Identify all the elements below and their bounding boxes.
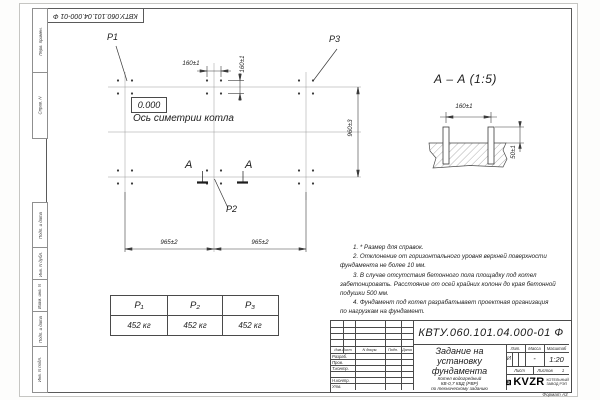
section-dim-height: 50±1 [510, 142, 518, 162]
note-line: подушки 500 мм. [340, 289, 576, 298]
format-label: Формат А3 [535, 393, 575, 398]
point-label-p3: P3 [329, 35, 340, 44]
section-dim-width: 160±1 [450, 104, 478, 110]
sheet-label: Лист [506, 366, 533, 374]
section-letter-right: А [245, 160, 252, 171]
document-subtitle: Котел водогрейный КВ-0,7 КБД (РВР) по те… [413, 376, 506, 390]
document-title: Задание на установку фундамента [413, 345, 506, 376]
load-table-value: 452 кг [222, 316, 278, 335]
row-label-utv: Утв. [331, 383, 356, 390]
notes-block: 1. * Размер для справок. 2. Отклонение о… [340, 243, 576, 317]
col-header-n-dokum: N докум. [355, 346, 385, 353]
dim-965-right: 965±2 [247, 240, 273, 246]
load-table-header: P₁ [111, 296, 167, 316]
dim-160-top-horizontal: 160±1 [178, 61, 204, 67]
sheets-value: 1 [557, 366, 569, 374]
plan-centerlines [108, 63, 361, 252]
row-label-tkontr: Т.контр. [331, 365, 356, 371]
note-line: забетонировать. Расстояние от осей крайн… [340, 280, 576, 289]
col-header-izm-list: Изм.Лист [331, 346, 355, 353]
col-header-podp: Подп. [385, 346, 401, 353]
note-line: 2. Отклонение от горизонтального уровня … [340, 252, 576, 261]
scale-label: Масштаб [544, 344, 569, 352]
load-table-header: P₂ [167, 296, 223, 316]
note-line: 1. * Размер для справок. [340, 243, 576, 252]
dim-160-top-vertical: 160±1 [239, 53, 247, 75]
lit-label: Лит. [506, 344, 525, 352]
title-block: Изм.Лист N докум. Подп. Дата Разраб. Про… [330, 320, 572, 393]
axis-of-symmetry-label: Ось симетрии котла [133, 114, 234, 124]
plan-dimension-lines [125, 66, 359, 252]
manufacturer-logo: KVZR КОТЕЛЬНЫЙ ЗАВОД РЭП [506, 374, 569, 390]
scale-value: 1:20 [544, 352, 569, 366]
lit-value: И [506, 352, 512, 366]
dim-960-right: 960±3 [347, 117, 355, 139]
note-line: фундамента не более 10 мм. [340, 261, 576, 270]
load-table: P₁ P₂ P₃ 452 кг 452 кг 452 кг [110, 295, 279, 336]
anchor-bolt-right [488, 127, 494, 164]
mass-value: - [525, 352, 544, 366]
mass-label: Масса [525, 344, 544, 352]
note-line: 3. В случае отсутствия бетонного пола пл… [340, 271, 576, 280]
col-header-data: Дата [401, 346, 413, 353]
load-table-value: 452 кг [111, 316, 167, 335]
note-line: 4. Фундамент под котел разрабатывает про… [340, 298, 576, 307]
anchor-bolt-left [443, 127, 449, 164]
kvzr-logo-text: KVZR [513, 376, 544, 388]
section-letter-left: А [185, 160, 192, 171]
note-line: по нагрузкам на фундамент. [340, 307, 576, 316]
point-label-p1: P1 [107, 33, 118, 42]
concrete-block [429, 143, 507, 168]
dim-965-left: 965±2 [156, 240, 182, 246]
section-view-title: А – А (1:5) [434, 73, 497, 85]
drawing-page: КВТУ.060.101.04.000-01 Ф Перв. примен. С… [0, 0, 600, 400]
load-table-value: 452 кг [167, 316, 223, 335]
load-table-header: P₃ [222, 296, 278, 316]
elevation-mark: 0.000 [131, 97, 167, 113]
kvzr-logo-subtext: КОТЕЛЬНЫЙ ЗАВОД РЭП [546, 378, 569, 386]
kvzr-spring-icon [506, 376, 511, 389]
point-label-p2: P2 [226, 205, 237, 214]
title-block-doc-number: КВТУ.060.101.04.000-01 Ф [413, 321, 569, 344]
sheets-label: Листов [533, 366, 557, 374]
